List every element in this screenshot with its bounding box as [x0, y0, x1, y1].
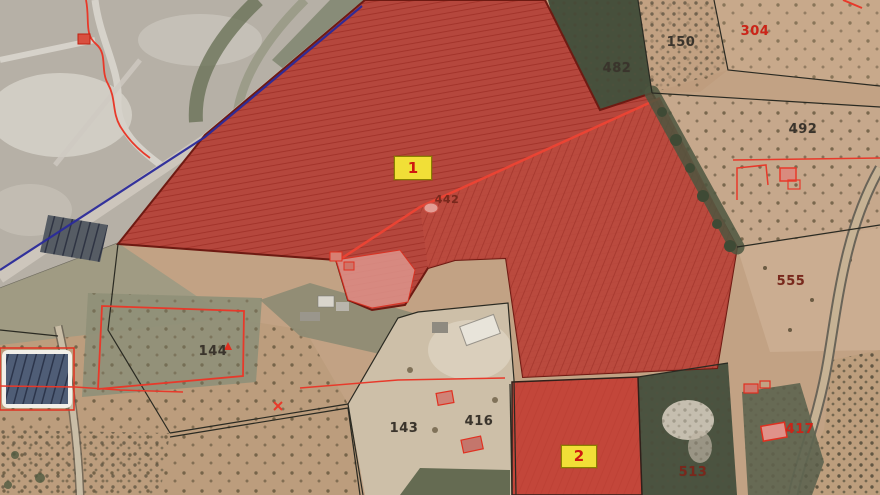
parcel-2-overlay[interactable] [512, 377, 642, 495]
aerial-imagery [0, 0, 880, 495]
map-viewport[interactable]: 482 150 304 492 555 144 143 416 442 513 … [0, 0, 880, 495]
selection-marker-1: 1 [394, 156, 432, 180]
selection-marker-2: 2 [561, 445, 597, 468]
greenhouse-structure [0, 348, 74, 410]
forest-bottom-right [638, 363, 737, 495]
